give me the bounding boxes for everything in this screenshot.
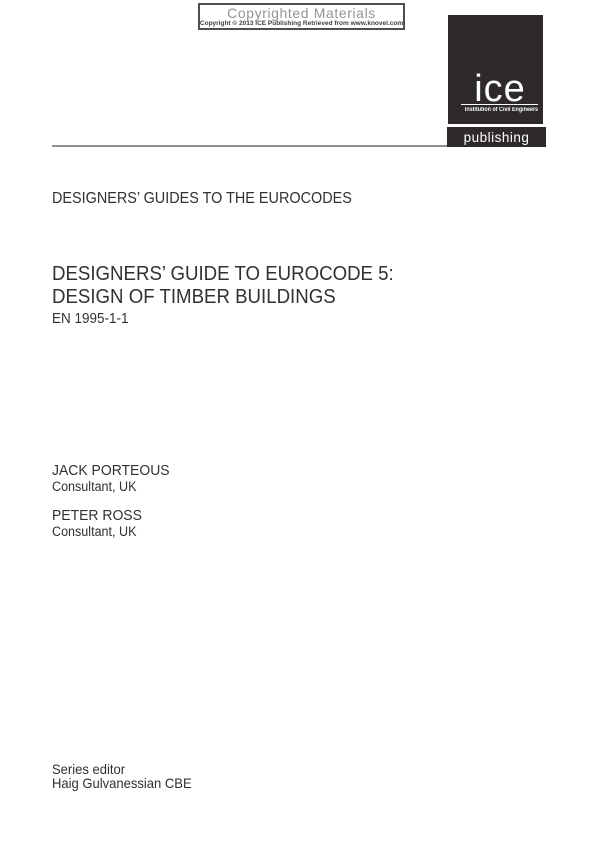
ice-logo-rule — [461, 104, 538, 105]
header-divider-rule — [52, 145, 447, 147]
book-title: DESIGNERS’ GUIDE TO EUROCODE 5: DESIGN O… — [52, 263, 428, 327]
ice-logo-square: ice Institution of Civil Engineers — [448, 15, 543, 124]
ice-logo-wordmark: ice — [460, 70, 540, 108]
author-name-text: JACK PORTEOUS — [52, 463, 170, 479]
book-title-code: EN 1995-1-1 — [52, 311, 428, 327]
author-role-text: Consultant, UK — [52, 479, 136, 494]
copyright-stamp-title: Copyrighted Materials — [227, 6, 376, 20]
ice-logo-institution-label: Institution of Civil Engineers — [465, 107, 534, 113]
copyright-stamp-subtitle: Copyright © 2013 ICE Publishing Retrieve… — [200, 20, 403, 28]
book-title-line-1-text: DESIGNERS’ GUIDE TO EUROCODE 5: — [52, 263, 394, 286]
series-editor-name-text: Haig Gulvanessian CBE — [52, 777, 192, 791]
series-heading-text: DESIGNERS’ GUIDES TO THE EUROCODES — [52, 190, 352, 207]
ice-logo-publishing-bar: publishing — [447, 127, 546, 147]
series-heading: DESIGNERS’ GUIDES TO THE EUROCODES — [52, 190, 374, 207]
book-title-line-2-text: DESIGN OF TIMBER BUILDINGS — [52, 286, 336, 309]
author-name: PETER ROSS — [52, 508, 149, 524]
book-title-line-2: DESIGN OF TIMBER BUILDINGS — [52, 286, 428, 309]
author-role: Consultant, UK — [52, 524, 149, 539]
author-entry: PETER ROSS Consultant, UK — [52, 508, 149, 539]
ice-publishing-logo: ice Institution of Civil Engineers publi… — [447, 15, 546, 147]
author-name: JACK PORTEOUS — [52, 463, 178, 479]
author-role: Consultant, UK — [52, 479, 178, 494]
book-title-code-text: EN 1995-1-1 — [52, 311, 128, 327]
series-editor-name: Haig Gulvanessian CBE — [52, 777, 202, 791]
copyright-stamp: Copyrighted Materials Copyright © 2013 I… — [198, 3, 405, 30]
author-role-text: Consultant, UK — [52, 524, 136, 539]
book-title-page: Copyrighted Materials Copyright © 2013 I… — [0, 0, 600, 847]
series-editor: Series editor Haig Gulvanessian CBE — [52, 763, 202, 790]
author-entry: JACK PORTEOUS Consultant, UK — [52, 463, 178, 494]
book-title-line-1: DESIGNERS’ GUIDE TO EUROCODE 5: — [52, 263, 428, 286]
author-name-text: PETER ROSS — [52, 508, 142, 524]
